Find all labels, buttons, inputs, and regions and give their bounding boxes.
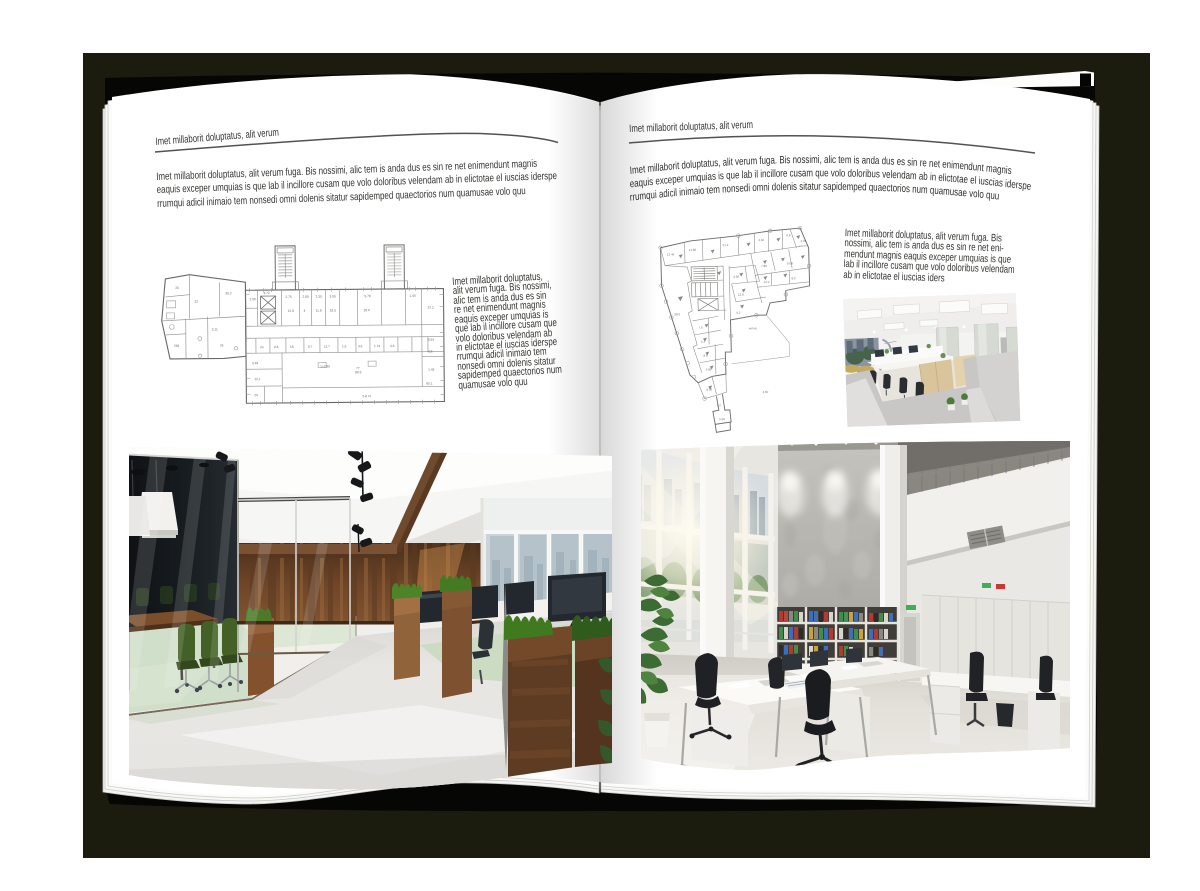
svg-text:18: 18 bbox=[290, 345, 294, 349]
svg-text:8.8: 8.8 bbox=[428, 350, 433, 354]
svg-text:5.78: 5.78 bbox=[364, 294, 370, 298]
svg-text:1=2.80: 1=2.80 bbox=[320, 365, 330, 369]
svg-text:28.6: 28.6 bbox=[364, 308, 370, 312]
svg-text:21.2: 21.2 bbox=[722, 243, 728, 247]
svg-text:80.1: 80.1 bbox=[426, 382, 432, 386]
svg-text:3.09: 3.09 bbox=[329, 294, 335, 298]
svg-text:266: 266 bbox=[174, 344, 180, 348]
svg-text:11.7: 11.7 bbox=[324, 345, 330, 349]
svg-text:2.80: 2.80 bbox=[302, 295, 308, 299]
svg-text:14.86: 14.86 bbox=[689, 248, 697, 252]
svg-text:7.6: 7.6 bbox=[699, 326, 704, 330]
svg-text:38.0: 38.0 bbox=[674, 312, 680, 316]
svg-text:4.20: 4.20 bbox=[800, 239, 806, 243]
svg-text:2.75: 2.75 bbox=[285, 295, 291, 299]
svg-text:12.0: 12.0 bbox=[763, 280, 769, 284]
svg-text:29: 29 bbox=[254, 393, 258, 397]
svg-text:9.06: 9.06 bbox=[787, 261, 793, 265]
svg-text:32: 32 bbox=[195, 300, 199, 304]
svg-text:1.43: 1.43 bbox=[428, 368, 434, 372]
svg-text:6.8: 6.8 bbox=[786, 233, 791, 237]
svg-text:26: 26 bbox=[175, 286, 179, 290]
svg-text:1.45: 1.45 bbox=[409, 294, 415, 298]
svg-text:2.2: 2.2 bbox=[717, 403, 722, 407]
svg-text:3.72: 3.72 bbox=[263, 291, 269, 295]
svg-text:4.6: 4.6 bbox=[358, 344, 363, 348]
svg-text:8.6: 8.6 bbox=[791, 276, 796, 280]
svg-text:6.4: 6.4 bbox=[701, 340, 706, 344]
svg-text:12.46: 12.46 bbox=[667, 252, 675, 256]
svg-text:1.6: 1.6 bbox=[342, 344, 347, 348]
svg-text:12.1: 12.1 bbox=[254, 377, 260, 381]
svg-text:9.66: 9.66 bbox=[733, 275, 739, 279]
svg-text:11.8: 11.8 bbox=[316, 309, 322, 313]
svg-text:26: 26 bbox=[220, 343, 224, 347]
svg-text:2-й эт: 2-й эт bbox=[362, 394, 371, 398]
svg-text:5.86: 5.86 bbox=[706, 367, 712, 371]
svg-text:13.8: 13.8 bbox=[738, 293, 744, 297]
svg-text:7.86: 7.86 bbox=[761, 264, 767, 268]
svg-text:4.3: 4.3 bbox=[390, 344, 395, 348]
svg-text:30.2: 30.2 bbox=[225, 291, 231, 295]
svg-text:4.60: 4.60 bbox=[762, 390, 768, 394]
svg-text:5.43: 5.43 bbox=[252, 361, 258, 365]
svg-text:5.96: 5.96 bbox=[719, 417, 725, 421]
svg-text:12.8: 12.8 bbox=[288, 309, 294, 313]
svg-text:4: 4 bbox=[304, 309, 306, 313]
svg-text:3.11: 3.11 bbox=[212, 327, 218, 331]
svg-text:2a: 2a bbox=[260, 345, 264, 349]
svg-text:9.96: 9.96 bbox=[706, 387, 712, 391]
svg-text:8.8: 8.8 bbox=[703, 354, 708, 358]
svg-text:86.5: 86.5 bbox=[355, 370, 361, 374]
svg-text:9.2: 9.2 bbox=[736, 311, 741, 315]
svg-text:9.8: 9.8 bbox=[274, 345, 279, 349]
svg-text:1.73: 1.73 bbox=[374, 344, 380, 348]
svg-text:4.60: 4.60 bbox=[758, 238, 764, 242]
svg-text:37.2: 37.2 bbox=[428, 306, 434, 310]
svg-text:2.06: 2.06 bbox=[250, 297, 256, 301]
svg-text:2.30: 2.30 bbox=[315, 295, 321, 299]
svg-text:5.54: 5.54 bbox=[428, 338, 434, 342]
svg-text:18.5: 18.5 bbox=[330, 308, 336, 312]
svg-text:петна: петна bbox=[749, 326, 757, 330]
svg-text:8.7: 8.7 bbox=[308, 345, 313, 349]
